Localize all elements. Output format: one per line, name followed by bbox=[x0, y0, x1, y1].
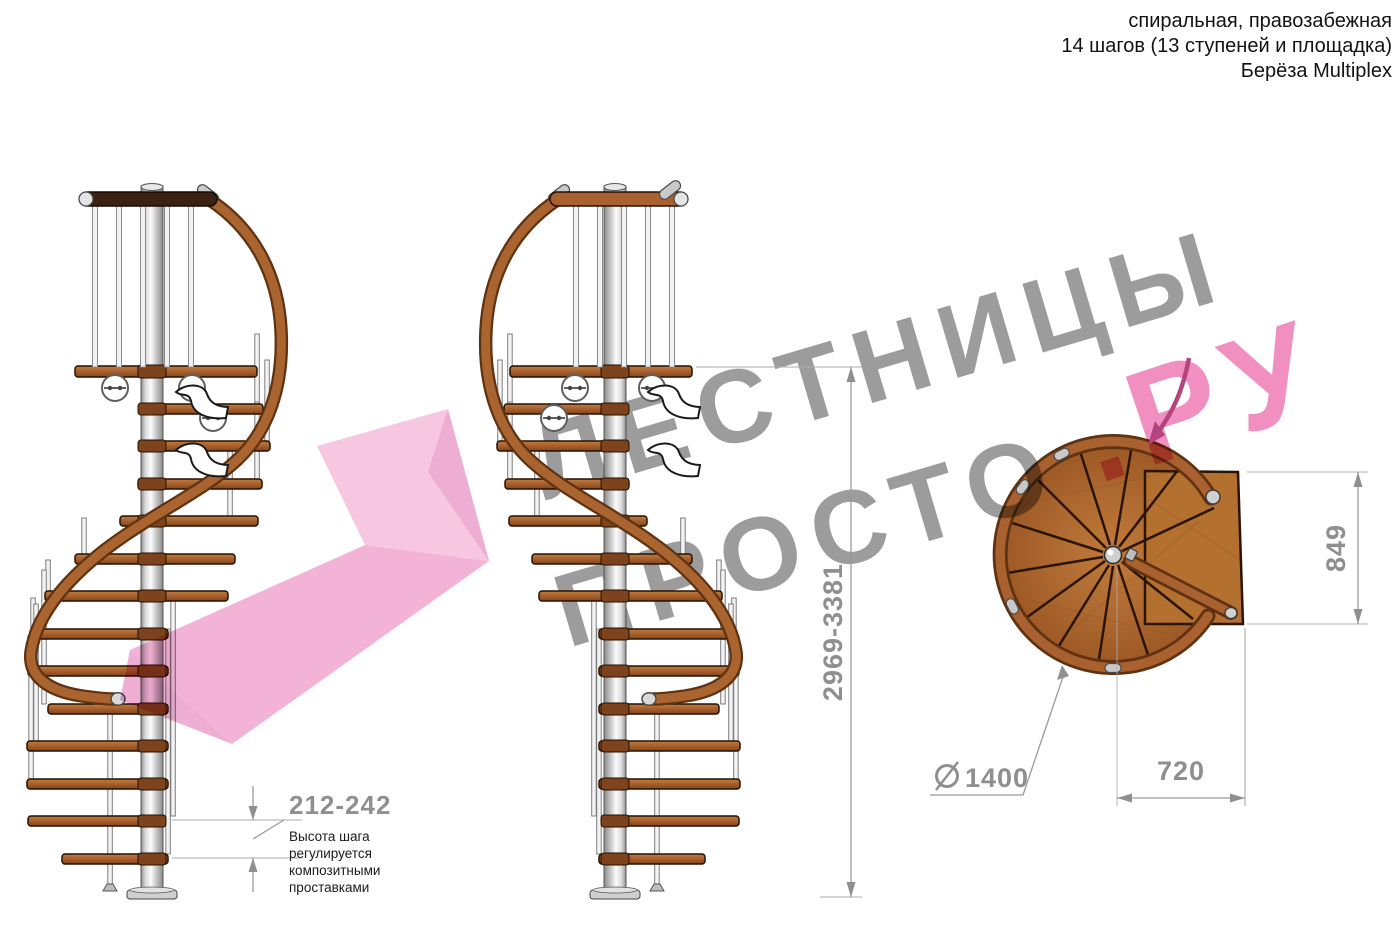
going-width-label: 720 bbox=[1157, 756, 1205, 786]
svg-text:регулируется: регулируется bbox=[289, 846, 372, 861]
svg-text:композитными: композитными bbox=[289, 863, 380, 878]
dimension-step-height: 212-242 Высота шага регулируется компози… bbox=[172, 786, 391, 895]
plan-center-pole bbox=[1105, 547, 1122, 564]
technical-drawing: ЛЕСТНИЦЫ ПРОСТО .РУ 2969- bbox=[0, 0, 1400, 938]
diameter-label: 1400 bbox=[965, 763, 1029, 793]
total-height-label: 2969-3381 bbox=[818, 563, 848, 701]
dimension-diameter: 1400 bbox=[930, 665, 1069, 795]
dimension-landing-depth: 849 bbox=[1247, 472, 1368, 624]
elevation-side-view bbox=[27, 183, 281, 899]
landing-depth-label: 849 bbox=[1321, 524, 1351, 572]
svg-text:проставками: проставками bbox=[289, 880, 369, 895]
handrail-end-cap bbox=[1206, 490, 1220, 504]
landing-handrail-dark bbox=[80, 192, 217, 206]
drawing-header: спиральная, правозабежная 14 шагов (13 с… bbox=[1061, 10, 1392, 82]
step-height-note: Высота шага регулируется композитными пр… bbox=[289, 829, 380, 895]
header-line-type: спиральная, правозабежная bbox=[1128, 10, 1392, 32]
header-line-steps: 14 шагов (13 ступеней и площадка) bbox=[1061, 35, 1392, 57]
svg-text:Высота шага: Высота шага bbox=[289, 829, 370, 844]
diameter-icon bbox=[936, 762, 958, 790]
pink-arrow-watermark bbox=[120, 409, 489, 744]
step-height-label: 212-242 bbox=[289, 790, 391, 820]
header-line-material: Берёза Multiplex bbox=[1241, 60, 1392, 82]
